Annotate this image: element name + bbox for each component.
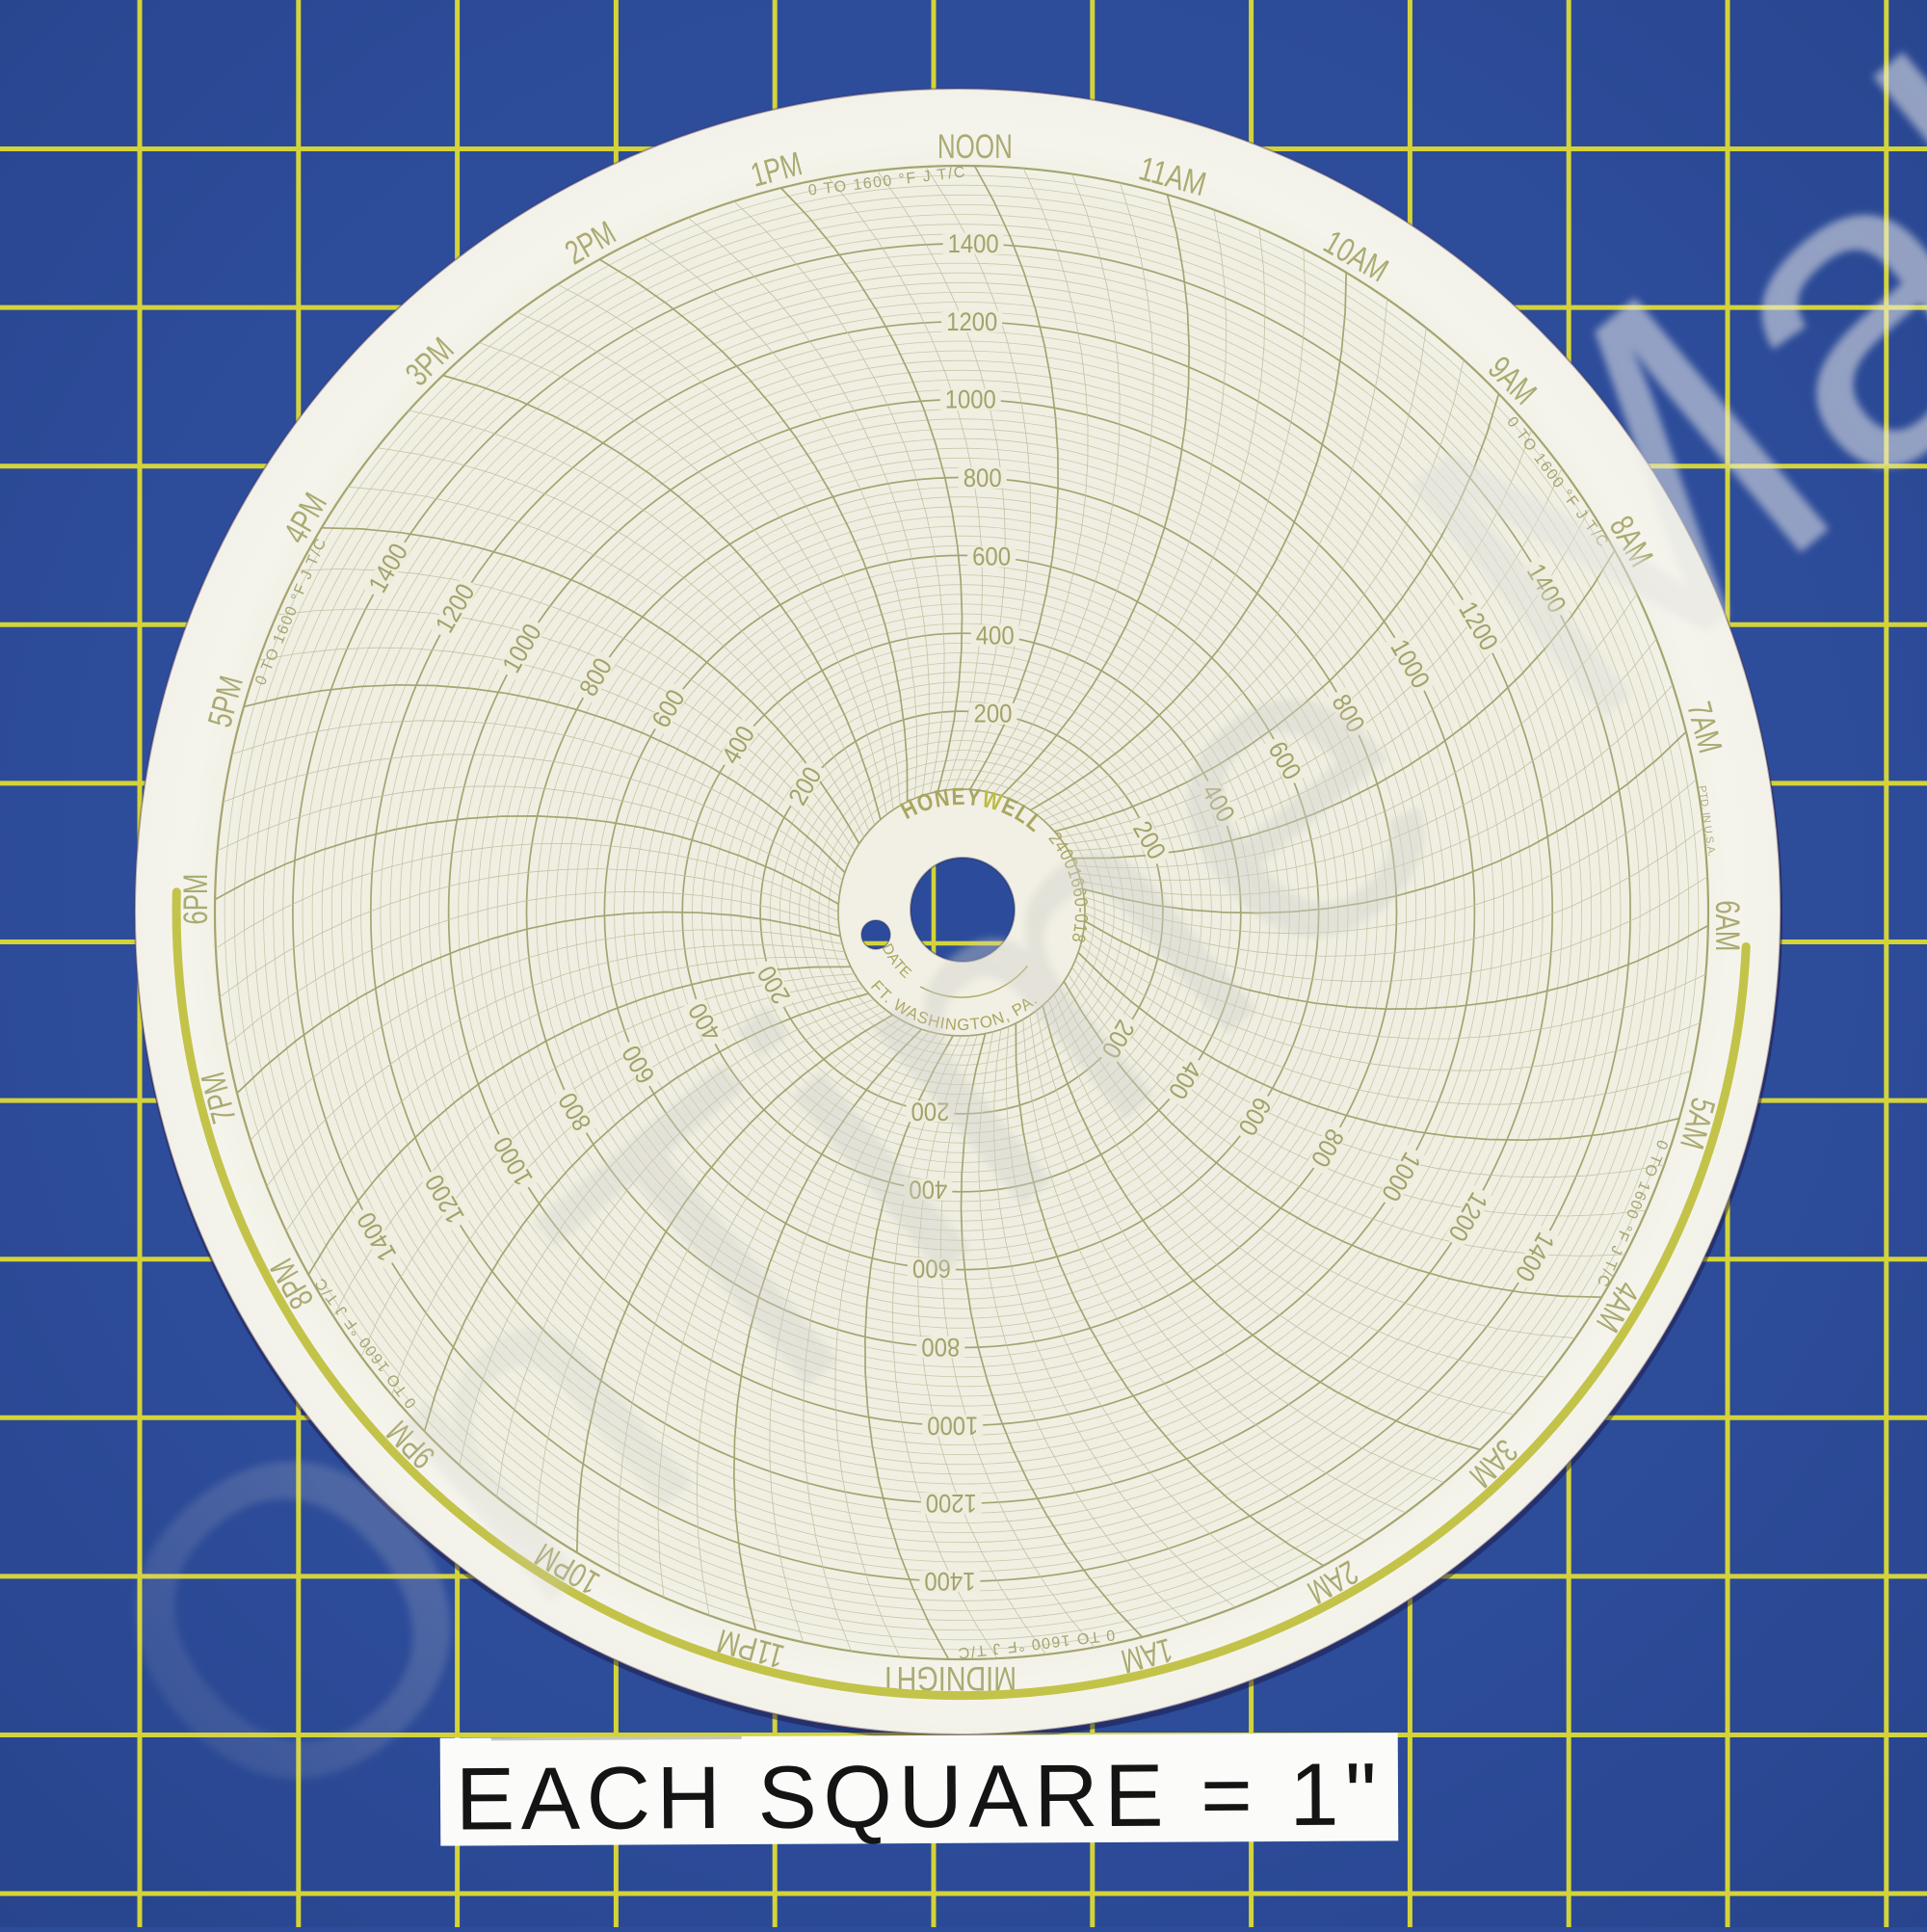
svg-text:1200: 1200 [926, 1489, 977, 1518]
svg-text:800: 800 [963, 463, 1002, 492]
svg-text:1000: 1000 [927, 1411, 978, 1440]
svg-text:1400: 1400 [924, 1567, 975, 1596]
svg-text:1200: 1200 [946, 307, 997, 336]
svg-text:1400: 1400 [948, 229, 999, 258]
svg-text:6AM: 6AM [1708, 900, 1746, 951]
svg-text:600: 600 [972, 543, 1011, 571]
svg-text:EACH SQUARE = 1": EACH SQUARE = 1" [456, 1745, 1384, 1848]
svg-text:NOON: NOON [937, 128, 1013, 166]
svg-text:6PM: 6PM [177, 874, 215, 925]
svg-text:400: 400 [976, 621, 1015, 649]
svg-text:1000: 1000 [945, 385, 996, 414]
